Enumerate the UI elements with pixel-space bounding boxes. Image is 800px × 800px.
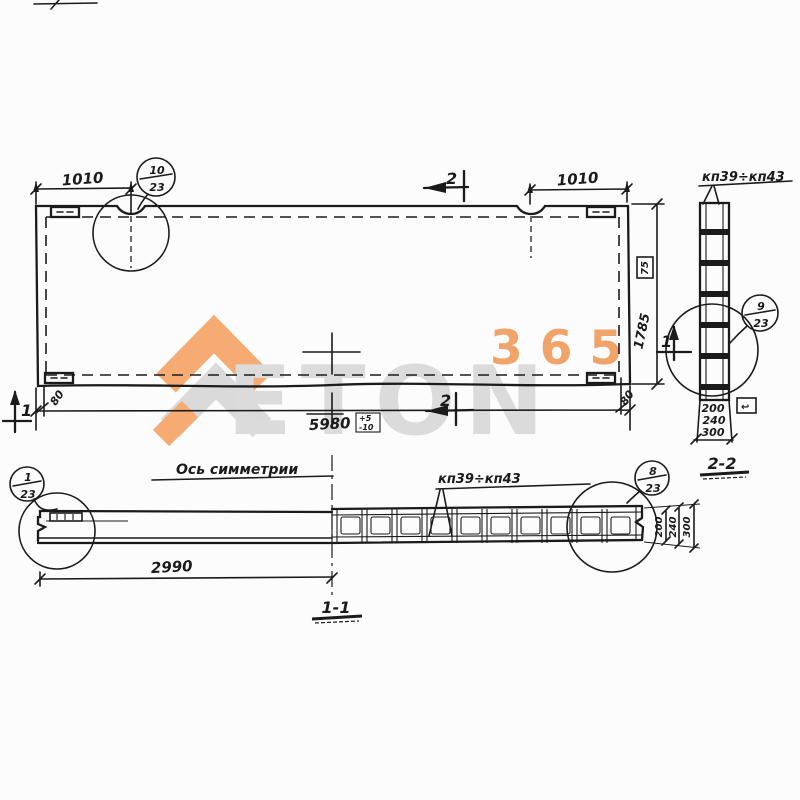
- callout-9-23: 9 23: [730, 295, 778, 343]
- section-label: 2: [446, 169, 457, 188]
- callout-1-23: 1 23: [10, 467, 57, 510]
- dim-text: 1010: [61, 169, 104, 190]
- tol-minus: -10: [359, 423, 374, 432]
- tol-plus: +5: [359, 414, 372, 423]
- view-label: 2-2: [708, 454, 737, 473]
- lifting-loop-top-left: [51, 207, 79, 217]
- lifting-loop-top-right: [587, 207, 615, 217]
- dims-1-1-right: 200 240 300: [644, 500, 700, 552]
- dim-240: 240: [668, 517, 679, 538]
- dim-text: 1010: [556, 169, 599, 190]
- callout-num: 8: [649, 465, 657, 478]
- watermark: 365 ETON: [161, 321, 639, 457]
- dim-300: 300: [702, 426, 725, 439]
- dim-300: 300: [682, 517, 693, 538]
- part-label: кп39÷кп43: [438, 472, 521, 487]
- orientation-arrow-icon: ↩: [741, 402, 749, 413]
- callout-10-23: 10 23: [137, 158, 175, 209]
- callout-den: 23: [645, 482, 661, 495]
- drawing-sheet: 365 ETON: [0, 0, 800, 800]
- section-2-2-view: кп39÷кп43 9 23 200 240 300 ↩: [666, 170, 792, 479]
- dim-text: 80: [47, 388, 67, 408]
- callout-den: 23: [149, 181, 165, 194]
- dim-200: 200: [654, 517, 665, 538]
- section-2-2-title: 2-2: [700, 454, 749, 479]
- section-label: 1: [21, 401, 32, 420]
- marker-box-75: 75: [637, 257, 653, 278]
- dim-text: 2990: [150, 557, 193, 577]
- callout-8-23: 8 23: [627, 461, 669, 503]
- callout-num: 9: [757, 300, 765, 313]
- dim-text: 5980: [308, 414, 351, 434]
- section-label: 2: [440, 391, 451, 410]
- callout-den: 23: [20, 488, 36, 501]
- section-1-1-title: 1-1: [312, 598, 362, 623]
- section-mark-2-top: 2: [424, 169, 468, 201]
- axis-label: Ось симметрии: [176, 462, 298, 478]
- section-mark-1-right: 1: [657, 325, 691, 360]
- end-loop: [50, 513, 82, 521]
- detail-circle-1-1-left: [19, 493, 95, 569]
- marker-text: 75: [640, 261, 651, 275]
- detail-circle-2-2: [666, 304, 758, 396]
- callout-num: 10: [149, 164, 165, 177]
- section-mark-1-left: 1: [3, 390, 32, 432]
- section-1-1-view: Ось симметрии кп39÷кп43 1 23 8 23: [10, 455, 700, 623]
- dim-1010-left: 1010: [31, 169, 136, 214]
- view-label: 1-1: [322, 598, 351, 617]
- dim-1010-right: 1010: [525, 169, 632, 204]
- callout-num: 1: [24, 471, 32, 484]
- callout-den: 23: [753, 317, 769, 330]
- left-end-profile: [38, 511, 46, 541]
- blueprint-canvas: 365 ETON: [0, 0, 800, 800]
- logo-chevron-small-orange: [161, 409, 190, 438]
- dims-2-2: 200 240 300: [691, 400, 737, 444]
- dim-text: 1785: [631, 312, 653, 351]
- watermark-word: ETON: [227, 347, 553, 457]
- marker-box-arrow: ↩: [737, 398, 756, 413]
- frame-fragment: [34, 0, 97, 9]
